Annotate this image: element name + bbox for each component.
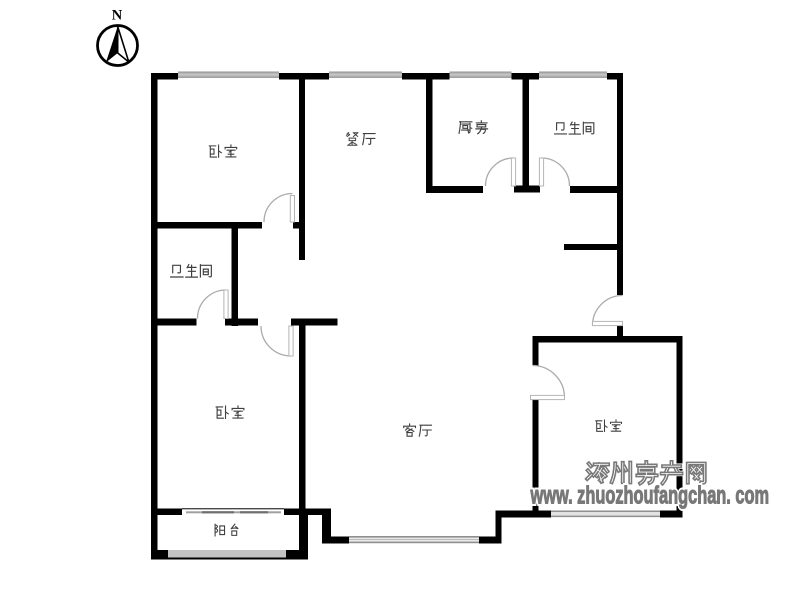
svg-text:N: N: [112, 8, 123, 24]
svg-text:www. zhuozhoufangchan. com: www. zhuozhoufangchan. com: [530, 482, 769, 509]
